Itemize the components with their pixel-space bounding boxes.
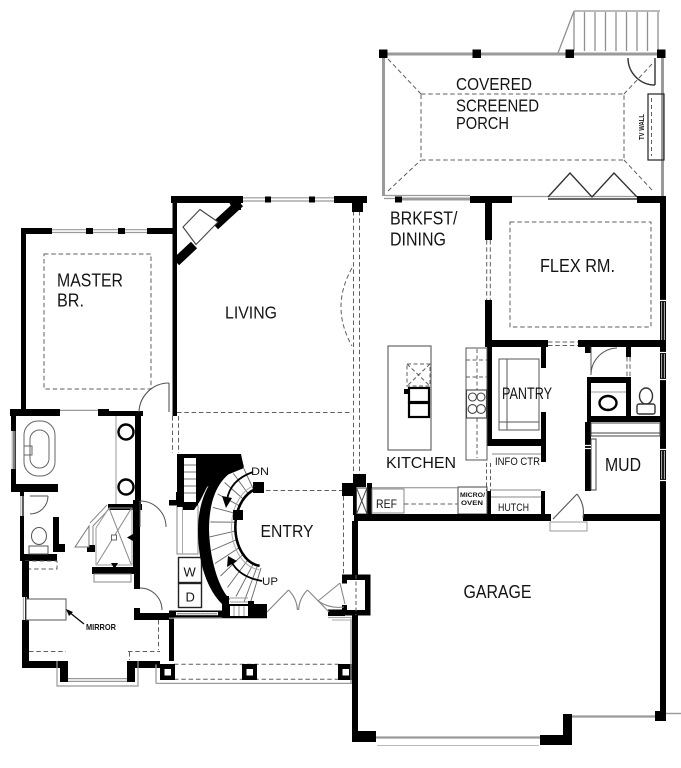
svg-text:REF: REF bbox=[376, 499, 397, 511]
svg-text:INFO CTR: INFO CTR bbox=[495, 456, 540, 468]
svg-text:MUD: MUD bbox=[605, 455, 641, 475]
svg-text:ENTRY: ENTRY bbox=[261, 521, 314, 541]
svg-text:D: D bbox=[186, 590, 195, 605]
svg-text:TV WALL: TV WALL bbox=[637, 114, 646, 140]
svg-text:OVEN: OVEN bbox=[461, 500, 483, 507]
svg-text:COVERED: COVERED bbox=[456, 74, 532, 94]
svg-text:MICRO/: MICRO/ bbox=[460, 492, 485, 499]
svg-text:DINING: DINING bbox=[390, 230, 446, 250]
svg-text:PORCH: PORCH bbox=[456, 113, 509, 133]
svg-text:GARAGE: GARAGE bbox=[464, 581, 532, 602]
svg-text:BRKFST/: BRKFST/ bbox=[390, 209, 458, 229]
svg-text:KITCHEN: KITCHEN bbox=[386, 455, 456, 472]
svg-text:MASTER: MASTER bbox=[57, 271, 123, 291]
svg-text:MIRROR: MIRROR bbox=[86, 622, 116, 632]
svg-text:UP: UP bbox=[262, 576, 278, 588]
svg-text:FLEX RM.: FLEX RM. bbox=[540, 256, 615, 276]
svg-text:PANTRY: PANTRY bbox=[502, 384, 552, 403]
svg-text:DN: DN bbox=[251, 466, 269, 478]
svg-text:HUTCH: HUTCH bbox=[498, 502, 529, 514]
svg-text:LIVING: LIVING bbox=[225, 302, 277, 322]
svg-text:BR.: BR. bbox=[57, 291, 84, 311]
svg-text:W: W bbox=[184, 565, 197, 580]
